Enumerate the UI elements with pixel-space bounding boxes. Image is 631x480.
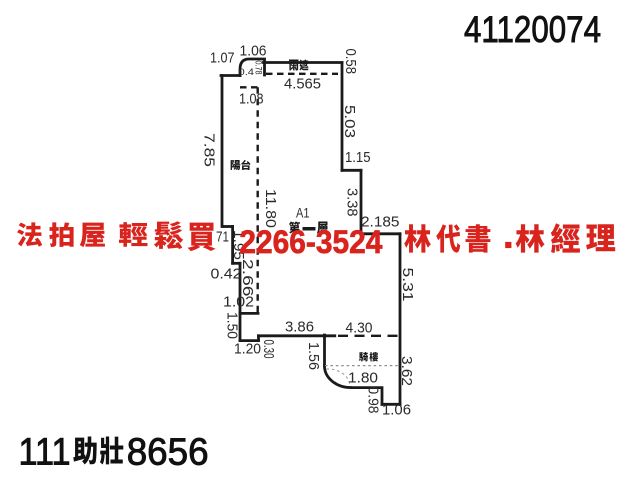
svg-text:1.80: 1.80 bbox=[348, 370, 378, 387]
svg-text:0.4: 0.4 bbox=[239, 67, 255, 78]
svg-text:41120074: 41120074 bbox=[464, 8, 601, 50]
svg-text:0.42: 0.42 bbox=[211, 266, 242, 283]
svg-text:4.565: 4.565 bbox=[284, 76, 321, 93]
svg-text:0.78: 0.78 bbox=[253, 61, 264, 75]
svg-text:5.31: 5.31 bbox=[399, 268, 416, 302]
svg-text:0.58: 0.58 bbox=[342, 49, 359, 75]
svg-text:11.80: 11.80 bbox=[262, 189, 279, 228]
svg-text:5.03: 5.03 bbox=[341, 105, 358, 138]
svg-text:0.30: 0.30 bbox=[260, 340, 277, 359]
svg-text:1.02: 1.02 bbox=[223, 294, 254, 311]
svg-text:3.62: 3.62 bbox=[398, 356, 415, 386]
svg-text:2266-3524: 2266-3524 bbox=[239, 224, 382, 260]
svg-text:7.85: 7.85 bbox=[201, 133, 218, 167]
svg-text:1.15: 1.15 bbox=[345, 149, 371, 166]
svg-text:2.66: 2.66 bbox=[239, 259, 256, 297]
svg-text:1.06: 1.06 bbox=[382, 402, 411, 419]
svg-text:1.08: 1.08 bbox=[239, 91, 264, 108]
svg-text:111: 111 bbox=[19, 431, 71, 473]
svg-text:1.56: 1.56 bbox=[305, 342, 322, 370]
svg-text:3.38: 3.38 bbox=[344, 188, 361, 217]
svg-text:1.06: 1.06 bbox=[240, 43, 267, 60]
svg-text:4.30: 4.30 bbox=[346, 320, 373, 337]
svg-text:1.20: 1.20 bbox=[234, 341, 261, 358]
svg-text:3.86: 3.86 bbox=[285, 319, 314, 336]
svg-text:1.50: 1.50 bbox=[224, 312, 241, 339]
svg-text:0.98: 0.98 bbox=[365, 387, 382, 414]
svg-text:71: 71 bbox=[216, 229, 229, 246]
svg-text:A1: A1 bbox=[296, 205, 310, 221]
svg-text:1.07: 1.07 bbox=[210, 50, 235, 67]
svg-text:8656: 8656 bbox=[127, 431, 209, 473]
